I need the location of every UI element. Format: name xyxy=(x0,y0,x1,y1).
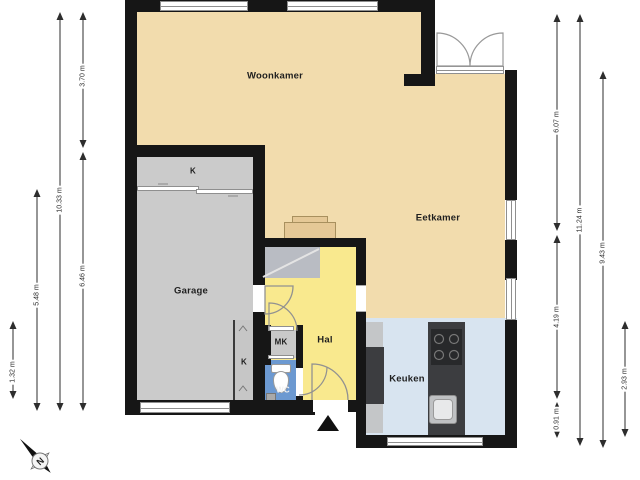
wall-hall-top xyxy=(253,238,366,247)
room-label-woonkamer: Woonkamer xyxy=(247,71,303,82)
wc-door-opening xyxy=(296,368,303,396)
dim-right-total: 11.24 m xyxy=(577,206,584,235)
dim-left-top: 3.70 m xyxy=(80,63,87,88)
compass-rose: N xyxy=(11,431,60,480)
garage-door xyxy=(140,402,230,413)
wall-hall-right-lower xyxy=(356,312,366,448)
entrance-arrow xyxy=(317,415,339,431)
opening-hall-dining xyxy=(356,285,366,312)
compass-north-label: N xyxy=(35,455,47,467)
opening-garage-hall xyxy=(253,285,265,312)
front-door-opening xyxy=(313,400,348,412)
wall-mk-left xyxy=(264,325,271,365)
kitchen-sink-basin xyxy=(433,399,453,420)
wall-hall-right-upper xyxy=(356,238,366,285)
dim-left-bottom: 6.46 m xyxy=(80,263,87,288)
dim-left-total: 10.33 m xyxy=(57,185,64,214)
top-right-cutout xyxy=(434,0,517,74)
wall-garage-top xyxy=(125,145,265,157)
room-label-keuken: Keuken xyxy=(389,374,425,385)
room-label-closet-small: K xyxy=(241,358,247,367)
room-label-closet-top: K xyxy=(190,167,196,176)
dim-right-kitchen: 2.93 m xyxy=(622,366,629,391)
wall-left xyxy=(125,0,137,415)
dining-cabinet xyxy=(284,222,336,239)
dim-right-entry: 0.91 m xyxy=(554,406,561,431)
room-label-eetkamer: Eetkamer xyxy=(416,213,460,224)
window-dining-lower xyxy=(506,278,516,320)
window-top-right xyxy=(287,1,378,11)
room-label-mk: MK xyxy=(275,338,288,347)
room-label-garage: Garage xyxy=(174,286,208,297)
wall-hall-bottom-corner xyxy=(348,400,366,412)
wall-step-nub xyxy=(404,74,435,86)
dim-right-middle: 4.19 m xyxy=(554,304,561,329)
mk-door-strip xyxy=(268,326,294,331)
wall-garage-right-upper xyxy=(253,145,265,285)
wall-right-middle xyxy=(505,240,517,280)
sliding-door-panel-right xyxy=(196,189,253,194)
window-dining-upper xyxy=(506,200,516,240)
sliding-door-panel-left xyxy=(137,186,199,191)
dim-left-closet: 1.32 m xyxy=(10,359,17,384)
dining-cabinet-top xyxy=(292,216,328,223)
wall-right-upper xyxy=(505,70,517,200)
french-door-sill xyxy=(436,66,504,74)
stairs xyxy=(262,247,320,278)
room-label-wc: WC xyxy=(276,386,290,395)
dim-left-garage: 5.48 m xyxy=(34,282,41,307)
window-top-left xyxy=(160,1,248,11)
compass-needle xyxy=(17,436,44,465)
room-label-hal: Hal xyxy=(317,335,332,346)
wall-right-lower xyxy=(505,320,517,448)
floorplan: N Woonkamer Eetkamer Garage Hal Keuken M… xyxy=(0,0,640,480)
dim-right-top: 6.07 m xyxy=(554,109,561,134)
dim-right-inner: 9.43 m xyxy=(600,240,607,265)
mk-bottom-strip xyxy=(268,355,294,359)
cooktop xyxy=(431,329,462,365)
window-kitchen xyxy=(387,437,483,446)
